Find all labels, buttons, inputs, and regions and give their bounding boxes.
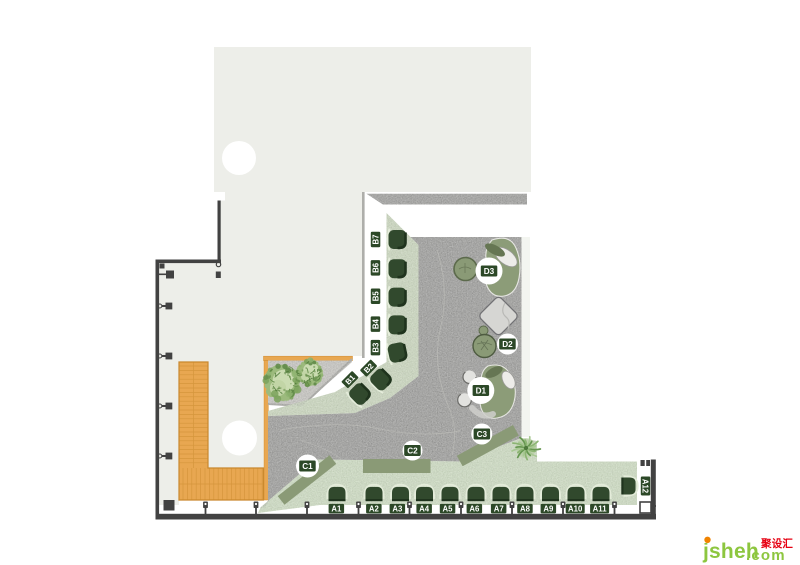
svg-text:A10: A10: [568, 505, 583, 514]
svg-text:D1: D1: [476, 386, 487, 395]
svg-text:D2: D2: [502, 340, 513, 349]
svg-text:A7: A7: [494, 505, 504, 514]
svg-text:聚设汇: 聚设汇: [760, 537, 793, 550]
svg-text:B4: B4: [371, 319, 380, 330]
svg-text:A1: A1: [331, 505, 342, 514]
svg-text:C2: C2: [407, 446, 418, 455]
svg-text:A4: A4: [419, 505, 430, 514]
svg-text:A8: A8: [520, 505, 531, 514]
svg-text:A2: A2: [369, 505, 380, 514]
svg-text:A11: A11: [593, 505, 608, 514]
svg-text:C1: C1: [302, 462, 313, 471]
svg-text:A6: A6: [469, 505, 480, 514]
svg-text:A12: A12: [641, 479, 650, 494]
svg-text:A3: A3: [392, 505, 403, 514]
svg-text:A5: A5: [443, 505, 454, 514]
svg-text:B3: B3: [371, 342, 380, 353]
svg-text:B6: B6: [371, 262, 380, 273]
svg-text:D3: D3: [484, 267, 495, 276]
svg-text:B7: B7: [371, 235, 380, 245]
svg-text:B5: B5: [371, 291, 380, 302]
svg-text:C3: C3: [477, 430, 488, 439]
svg-text:A9: A9: [543, 505, 554, 514]
